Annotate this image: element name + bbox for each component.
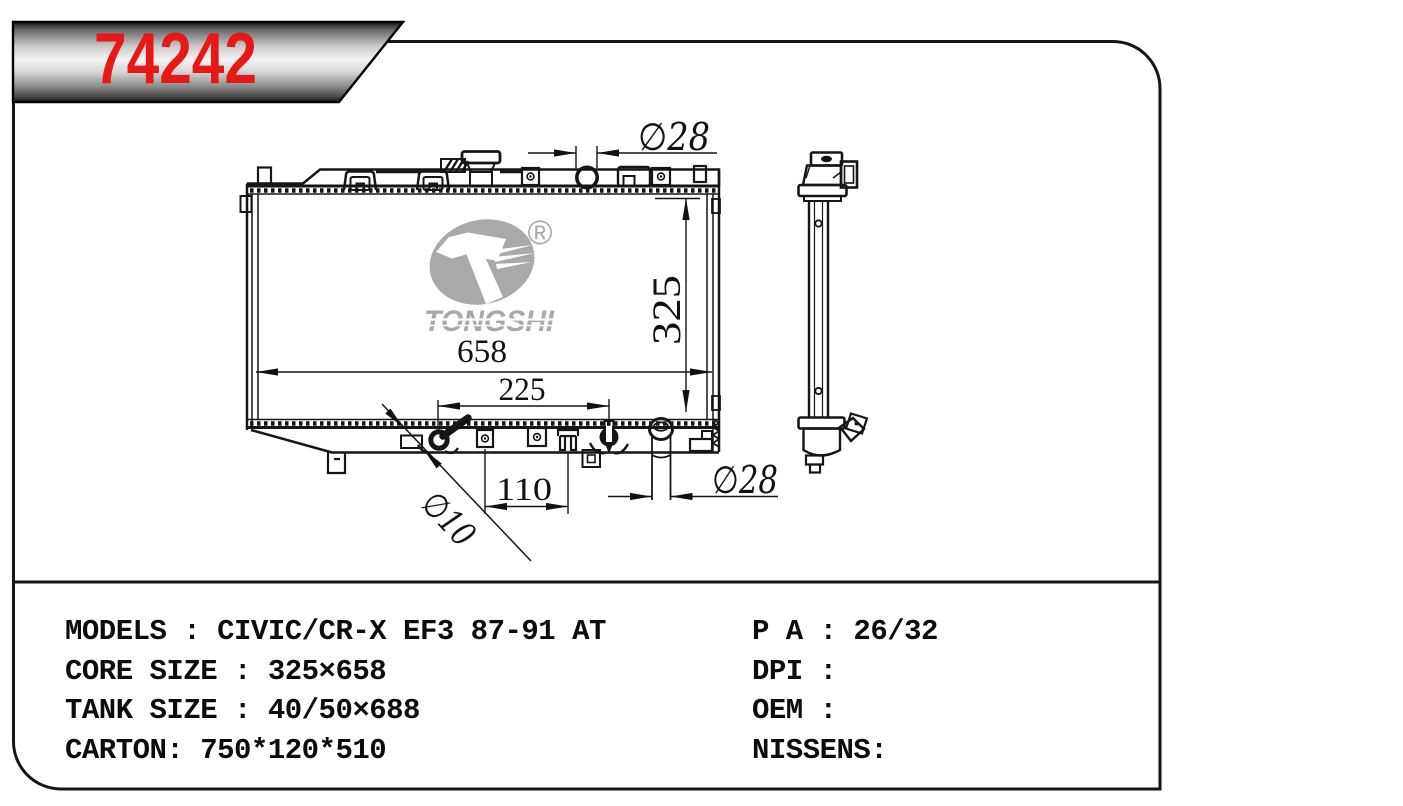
dimension-bracket-spacing: 110 bbox=[485, 449, 568, 514]
spec-models: MODELS : CIVIC/CR-X EF3 87-91 AT bbox=[65, 612, 606, 652]
spec-core-size: CORE SIZE : 325×658 bbox=[65, 652, 606, 692]
dimension-top-port-diameter: ∅28 bbox=[528, 115, 717, 168]
label-port-spacing: 225 bbox=[499, 372, 546, 408]
label-overall-width: 658 bbox=[457, 334, 507, 370]
spec-list-right: P A : 26/32 DPI : OEM : NISSENS: bbox=[752, 612, 938, 770]
brand-watermark: ® TONGSHI bbox=[420, 208, 556, 338]
spec-tank-size: TANK SIZE : 40/50×688 bbox=[65, 691, 606, 731]
dimension-core-height: 325 bbox=[644, 198, 700, 412]
spec-nissens: NISSENS: bbox=[752, 731, 938, 771]
part-number-banner: 74242 bbox=[13, 19, 403, 102]
spec-pa: P A : 26/32 bbox=[752, 612, 938, 652]
label-core-height: 325 bbox=[644, 275, 689, 345]
spec-carton: CARTON: 750*120*510 bbox=[65, 731, 606, 771]
registered-mark: ® bbox=[527, 214, 552, 252]
dimension-bottom-port-diameter: ∅28 bbox=[608, 458, 778, 502]
label-bottom-port-diameter: ∅28 bbox=[712, 458, 778, 502]
spec-oem: OEM : bbox=[752, 691, 938, 731]
bottom-outlet-port bbox=[650, 419, 673, 501]
label-bracket-spacing: 110 bbox=[496, 472, 552, 508]
spec-list-left: MODELS : CIVIC/CR-X EF3 87-91 AT CORE SI… bbox=[65, 612, 606, 770]
radiator-side-view bbox=[799, 153, 868, 473]
label-drain-diameter: ∅10 bbox=[413, 484, 483, 555]
label-top-port-diameter: ∅28 bbox=[638, 115, 710, 159]
bottom-bolt-holes bbox=[477, 428, 546, 447]
catalog-page: 74242 ® TONGSHI bbox=[0, 0, 1403, 806]
spec-dpi: DPI : bbox=[752, 652, 938, 692]
bottom-right-bracket bbox=[690, 431, 712, 451]
part-number: 74242 bbox=[94, 19, 257, 99]
